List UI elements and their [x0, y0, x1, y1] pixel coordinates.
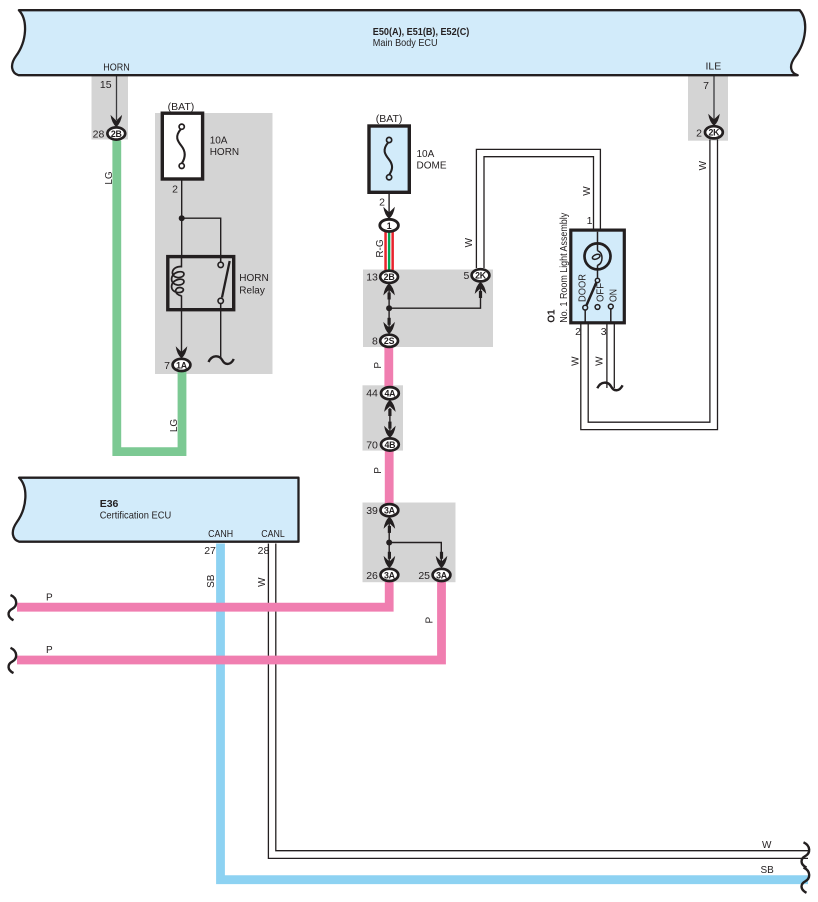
svg-text:4B: 4B: [384, 440, 395, 450]
svg-text:CANH: CANH: [208, 528, 233, 540]
svg-text:CANL: CANL: [261, 528, 285, 540]
svg-text:13: 13: [366, 271, 378, 283]
svg-text:1A: 1A: [176, 360, 188, 370]
svg-text:44: 44: [366, 388, 378, 400]
svg-text:R-G: R-G: [375, 239, 386, 258]
svg-text:70: 70: [366, 439, 378, 451]
svg-text:8: 8: [372, 335, 378, 347]
svg-text:2S: 2S: [384, 336, 395, 346]
svg-text:7: 7: [164, 360, 170, 372]
svg-text:3A: 3A: [384, 570, 396, 580]
svg-text:3A: 3A: [384, 506, 396, 516]
svg-text:W: W: [762, 840, 772, 851]
svg-text:ON: ON: [608, 289, 619, 302]
svg-text:OFF: OFF: [596, 283, 607, 302]
svg-text:E36: E36: [100, 498, 119, 510]
svg-text:15: 15: [100, 79, 112, 91]
svg-text:P: P: [46, 593, 53, 604]
svg-text:W: W: [582, 186, 593, 196]
svg-text:HORN: HORN: [239, 273, 268, 284]
svg-text:39: 39: [366, 505, 378, 517]
svg-text:P: P: [373, 362, 384, 369]
svg-text:2: 2: [575, 326, 581, 338]
svg-text:DOOR: DOOR: [577, 274, 588, 302]
svg-text:2K: 2K: [475, 271, 487, 281]
svg-text:HORN: HORN: [103, 62, 130, 74]
svg-text:2B: 2B: [111, 129, 122, 139]
svg-text:1: 1: [587, 215, 593, 227]
svg-text:2: 2: [379, 196, 385, 208]
svg-text:2: 2: [172, 184, 178, 196]
svg-text:27: 27: [204, 545, 216, 557]
svg-text:P: P: [424, 617, 435, 624]
svg-text:No. 1 Room Light Assembly: No. 1 Room Light Assembly: [559, 213, 570, 323]
svg-text:7: 7: [703, 80, 709, 92]
svg-text:2B: 2B: [384, 272, 395, 282]
svg-text:P: P: [373, 467, 384, 474]
svg-text:W: W: [595, 356, 606, 366]
svg-text:10A: 10A: [210, 136, 228, 147]
svg-text:5: 5: [463, 270, 469, 282]
svg-text:10A: 10A: [417, 149, 435, 160]
svg-text:Relay: Relay: [239, 286, 265, 297]
svg-text:3A: 3A: [436, 570, 448, 580]
svg-text:LG: LG: [169, 419, 180, 433]
svg-text:ILE: ILE: [706, 61, 722, 73]
svg-text:SB: SB: [761, 865, 775, 876]
svg-text:W: W: [570, 356, 581, 366]
svg-text:Certification ECU: Certification ECU: [100, 510, 172, 522]
svg-text:2: 2: [696, 127, 702, 139]
svg-text:W: W: [464, 237, 475, 247]
svg-text:1: 1: [387, 221, 392, 231]
svg-text:3: 3: [601, 326, 607, 338]
svg-text:SB: SB: [206, 574, 217, 588]
svg-text:P: P: [46, 645, 53, 656]
svg-text:HORN: HORN: [210, 147, 239, 158]
svg-text:(BAT): (BAT): [168, 101, 195, 113]
svg-text:W: W: [257, 577, 268, 587]
svg-text:28: 28: [93, 129, 105, 141]
svg-text:4A: 4A: [384, 389, 396, 399]
svg-text:(BAT): (BAT): [376, 113, 403, 125]
svg-text:O1: O1: [547, 309, 558, 323]
svg-text:Main Body ECU: Main Body ECU: [373, 37, 438, 49]
svg-text:25: 25: [418, 570, 430, 582]
svg-text:28: 28: [258, 545, 270, 557]
svg-text:2K: 2K: [708, 128, 720, 138]
svg-text:26: 26: [366, 570, 378, 582]
svg-text:LG: LG: [104, 171, 115, 185]
svg-text:DOME: DOME: [417, 161, 447, 172]
svg-text:W: W: [698, 160, 709, 170]
